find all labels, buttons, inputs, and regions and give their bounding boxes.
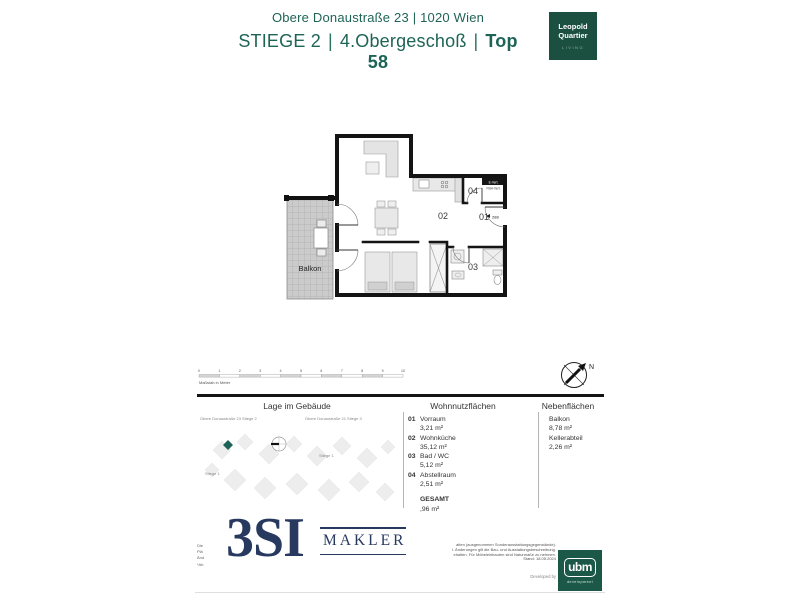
side-area-value: 8,78 m² (549, 424, 601, 433)
separator: | (474, 31, 479, 51)
room-area: 2,51 m² (408, 480, 533, 489)
total-area: ,96 m² (408, 505, 533, 514)
side-areas-title: Nebenflächen (538, 401, 598, 411)
side-area-name: Balkon (549, 415, 601, 424)
header: Obere Donaustraße 23 | 1020 Wien STIEGE … (228, 10, 528, 73)
room-area: 3,21 m² (408, 424, 533, 433)
leopold-quartier-logo: Leopold Quartier LIVING (549, 12, 597, 60)
north-label: N (589, 364, 594, 371)
room-name: Bad / WC (420, 453, 449, 460)
room-area: 5,12 m² (408, 461, 533, 470)
address-line: Obere Donaustraße 23 | 1020 Wien (228, 10, 528, 25)
living-areas-title: Wohnnutzflächen (398, 401, 528, 411)
separator: | (328, 31, 333, 51)
door-width-label: 288 (492, 214, 499, 219)
room-number: 04 (408, 471, 420, 480)
bed (392, 252, 417, 292)
scale-caption: Maßstab in Meter (199, 380, 231, 385)
location-title: Lage im Gebäude (197, 401, 397, 411)
siteplan-label-right: Obere Donaustraße 21 Stiege 3 (305, 416, 362, 421)
developed-by-label: Developed by (477, 574, 556, 579)
site-plan: Obere Donaustraße 23 Stiege 2 Obere Dona… (197, 412, 397, 510)
svg-text:0: 0 (198, 369, 200, 373)
building-footprints (205, 434, 395, 501)
floor-label: 4.Obergeschoß (340, 31, 467, 51)
scalebar-compass: 0 1 2 3 4 5 6 7 8 9 10 Maßstab in Meter … (195, 360, 605, 396)
stiege-label: STIEGE 2 (238, 31, 321, 51)
svg-text:10: 10 (401, 369, 405, 373)
balcony: Balkon (284, 195, 337, 299)
sink (452, 271, 464, 279)
table-row: 04Abstellraum 2,51 m² (408, 471, 533, 490)
table-row: 01Vorraum 3,21 m² (408, 415, 533, 434)
living-areas-table: 01Vorraum 3,21 m² 02Wohnküche 35,12 m² 0… (408, 415, 533, 514)
room-name: Wohnküche (420, 435, 456, 442)
total-label: GESAMT (408, 495, 533, 504)
room-area: 35,12 m² (408, 443, 533, 452)
shaft-label-1: E-Vert. (489, 180, 499, 184)
logo-line2: Quartier (549, 32, 597, 41)
svg-text:8: 8 (361, 369, 363, 373)
scale-bar: 0 1 2 3 4 5 6 7 8 9 10 Maßstab in Meter (198, 369, 405, 385)
stiege1-label: Stiege 1 (319, 453, 334, 458)
column-divider (538, 412, 539, 508)
ubm-development-text: development (558, 580, 602, 584)
svg-text:9: 9 (382, 369, 384, 373)
table-row: 02Wohnküche 35,12 m² (408, 434, 533, 453)
section-divider (197, 394, 604, 397)
total-row: GESAMT ,96 m² (408, 495, 533, 514)
side-area-name: Kellerabteil (549, 434, 601, 443)
room-number: 02 (408, 434, 420, 443)
room-label-03: 03 (468, 262, 478, 272)
page-bottom-edge (195, 592, 605, 593)
room-number: 01 (408, 415, 420, 424)
svg-text:6: 6 (320, 369, 322, 373)
logo-line3: LIVING (549, 45, 597, 50)
room-name: Vorraum (420, 416, 446, 423)
room-name: Abstellraum (420, 472, 456, 479)
table-row: 03Bad / WC 5,12 m² (408, 452, 533, 471)
svg-text:7: 7 (341, 369, 343, 373)
room-number: 03 (408, 452, 420, 461)
ubm-text: ubm (565, 559, 595, 575)
shaft-label-2: FBH-Vert. (487, 187, 501, 191)
3si-logo: 3SI (226, 506, 304, 570)
bed (365, 252, 390, 292)
floorplan-drawing: Balkon (280, 122, 515, 312)
unit-line: STIEGE 2|4.Obergeschoß|Top 58 (228, 31, 528, 73)
svg-text:1: 1 (218, 369, 220, 373)
column-divider (403, 412, 404, 508)
balkon-label: Balkon (299, 264, 322, 273)
ubm-frame: ubm (564, 558, 596, 577)
washing-machine (451, 250, 464, 263)
room-label-04: 04 (468, 186, 478, 196)
disclaimer: alten (ausgenommen Sonderausstattungsgeg… (386, 543, 556, 562)
north-compass-icon: N (562, 363, 595, 388)
side-areas-table: Balkon 8,78 m² Kellerabteil 2,26 m² (549, 415, 601, 452)
svg-text:2: 2 (239, 369, 241, 373)
ubm-logo: ubm development (558, 550, 602, 591)
wardrobe (430, 244, 447, 292)
shower (483, 249, 503, 266)
stiege1-label: Stiege 1 (205, 471, 220, 476)
siteplan-label-left: Obere Donaustraße 23 Stiege 2 (200, 416, 257, 421)
floorplan-document: Obere Donaustraße 23 | 1020 Wien STIEGE … (0, 0, 800, 600)
svg-text:5: 5 (300, 369, 302, 373)
room-label-01: 01 (479, 212, 489, 222)
svg-text:4: 4 (280, 369, 282, 373)
side-area-value: 2,26 m² (549, 443, 601, 452)
svg-text:3: 3 (259, 369, 261, 373)
footer-left-fragments: Die Plä Änd *Ab (197, 543, 204, 568)
room-label-02: 02 (438, 211, 448, 221)
